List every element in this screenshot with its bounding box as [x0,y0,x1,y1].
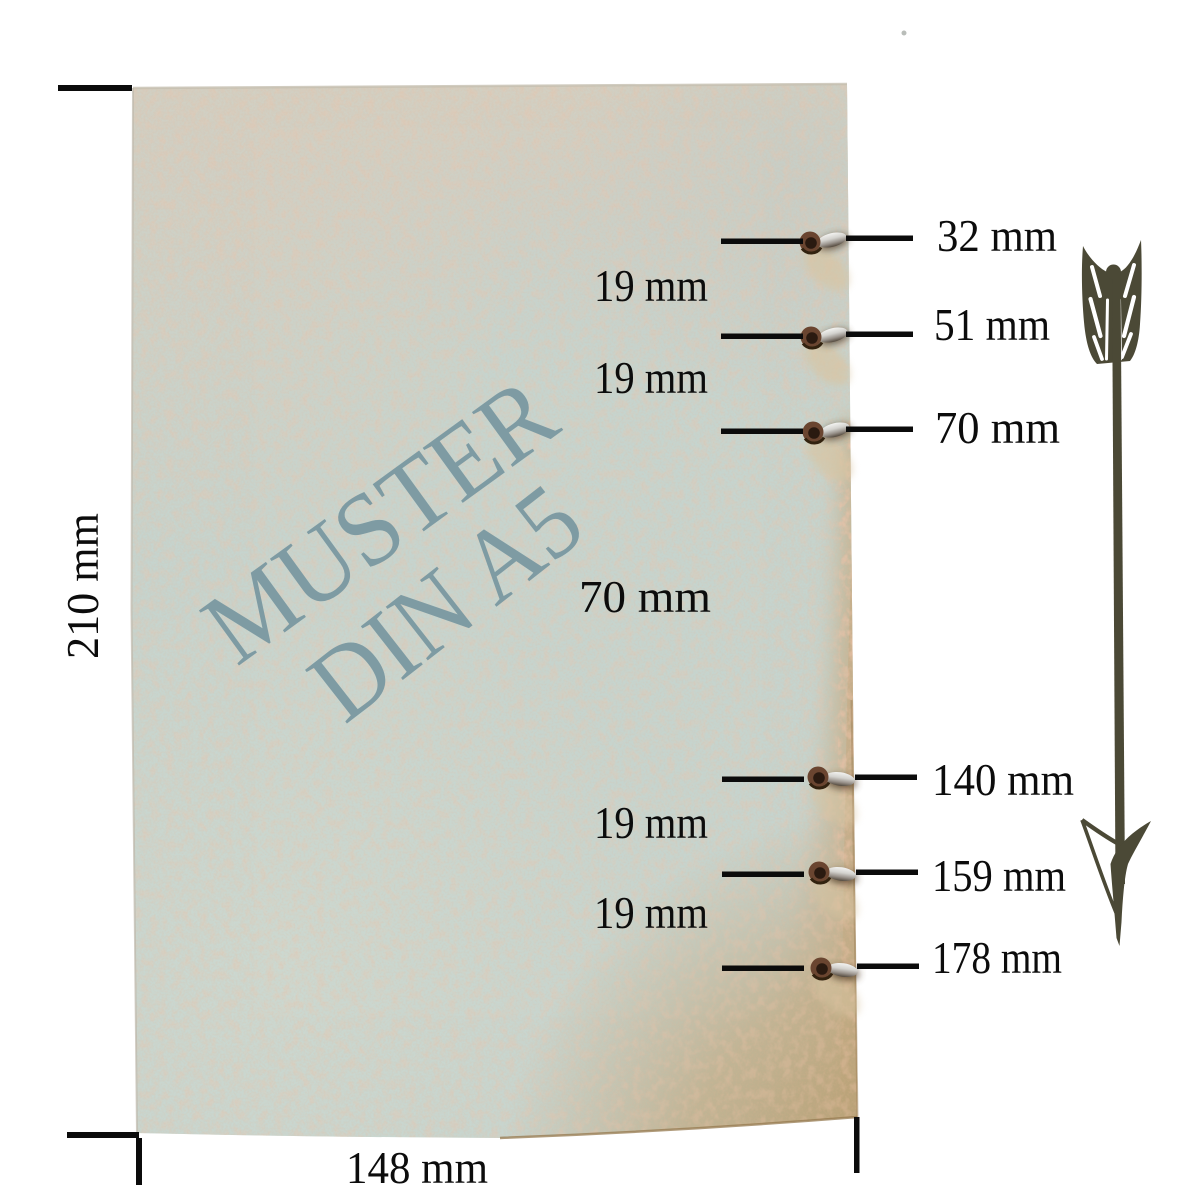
svg-text:210 mm: 210 mm [57,513,108,659]
svg-text:19 mm: 19 mm [594,352,708,403]
svg-text:70 mm: 70 mm [579,571,711,622]
svg-text:32 mm: 32 mm [937,210,1057,261]
svg-text:178 mm: 178 mm [932,932,1062,983]
svg-text:51 mm: 51 mm [934,299,1050,350]
svg-text:140 mm: 140 mm [932,754,1074,805]
svg-text:19 mm: 19 mm [594,797,708,848]
svg-text:19 mm: 19 mm [594,887,708,938]
svg-text:159 mm: 159 mm [932,850,1066,901]
svg-text:70 mm: 70 mm [935,402,1060,453]
svg-text:148 mm: 148 mm [346,1142,488,1193]
svg-text:19 mm: 19 mm [594,260,708,311]
